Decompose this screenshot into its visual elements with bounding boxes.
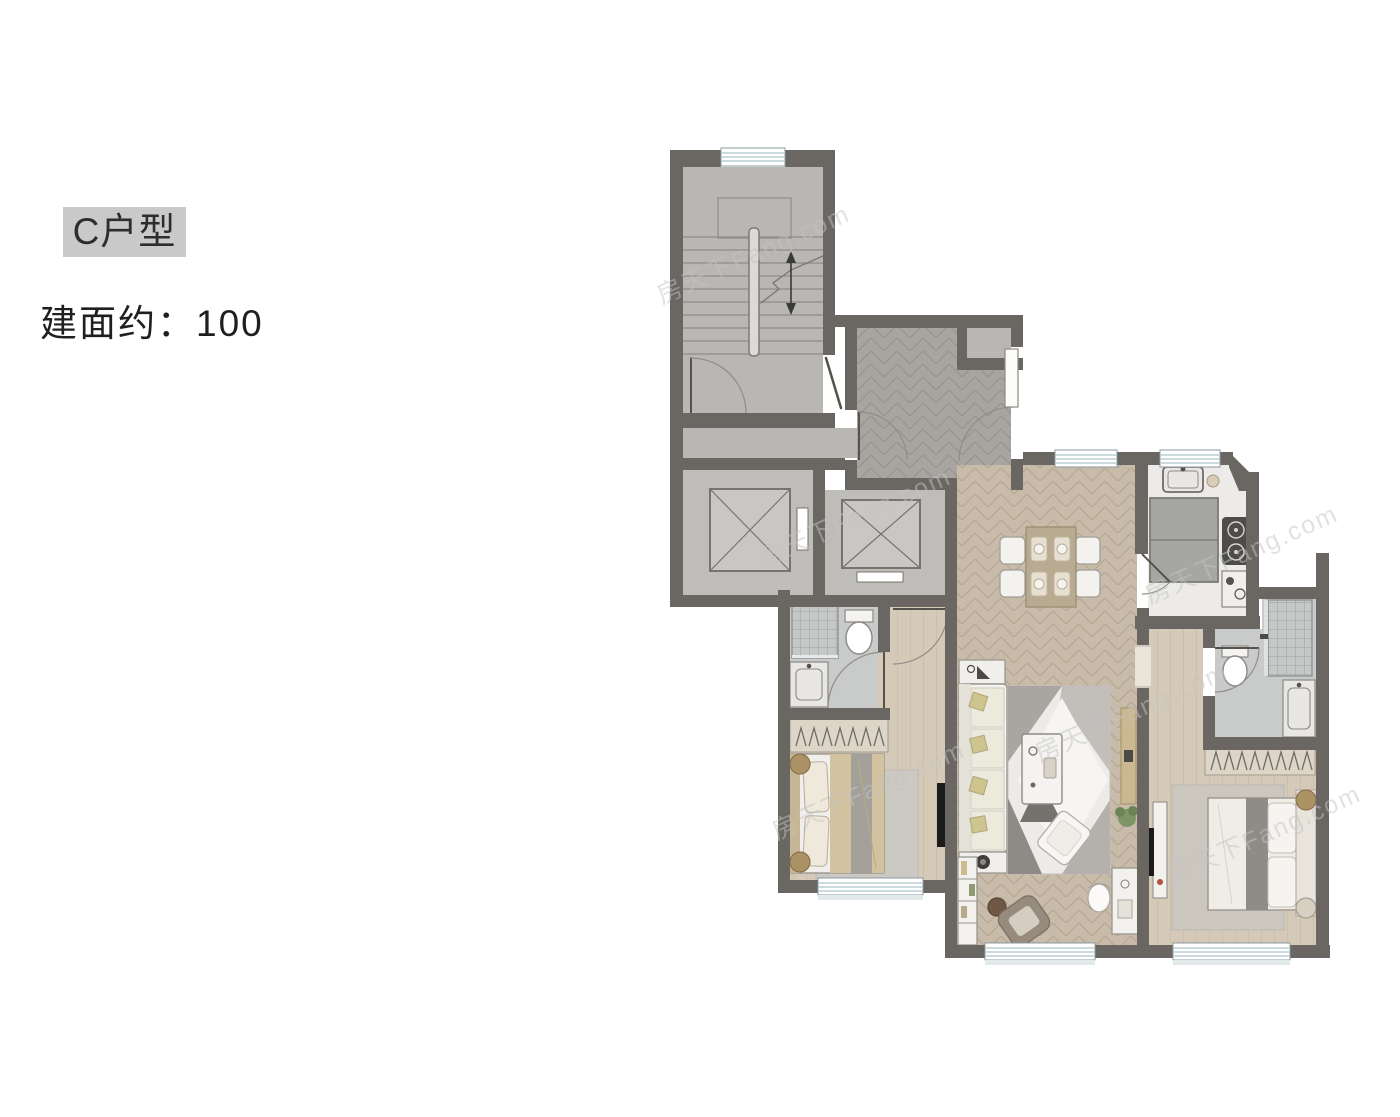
kitchen-window [1160,450,1220,467]
living-window [985,943,1095,965]
left-bedroom-window [818,878,923,900]
bookshelf [958,857,977,945]
suite-door-threshold [1135,645,1151,688]
floor-plan-page: C户型 建面约：100 [0,0,1400,1117]
kitchen-counter-item [1207,475,1219,487]
desk [1112,868,1138,934]
desk-chair [1088,884,1110,913]
stair-window [721,148,785,166]
toilet-guest [845,610,873,654]
vanity-master [1283,680,1315,737]
area-label: 建面约：100 [40,293,264,347]
stair-side-door [826,358,841,408]
shower-guest-glass [792,655,838,658]
tv-left [937,783,945,847]
shower-master-handle [1260,634,1268,639]
nightstand-left-top [790,754,810,774]
lobby-floor [683,428,857,458]
shower-guest [792,602,838,658]
nightstand-left-bottom [790,852,810,872]
console-master [1153,802,1167,898]
wardrobe-left [790,719,888,752]
dining-table [1026,527,1076,607]
shower-master [1268,600,1312,676]
master-window [1173,943,1290,965]
elevator-right-door [857,572,903,582]
floor-plan: 房天下Fang.com 房天下Fang.com 房天下Fang.com 房天下F… [0,0,1400,1117]
sofa [959,660,1007,873]
nightstand-master-bottom [1296,898,1316,918]
living-top-window [1055,450,1117,467]
vanity-guest [790,662,828,707]
kitchen-sink [1163,467,1203,493]
unit-type-badge: C户型 [63,207,186,257]
